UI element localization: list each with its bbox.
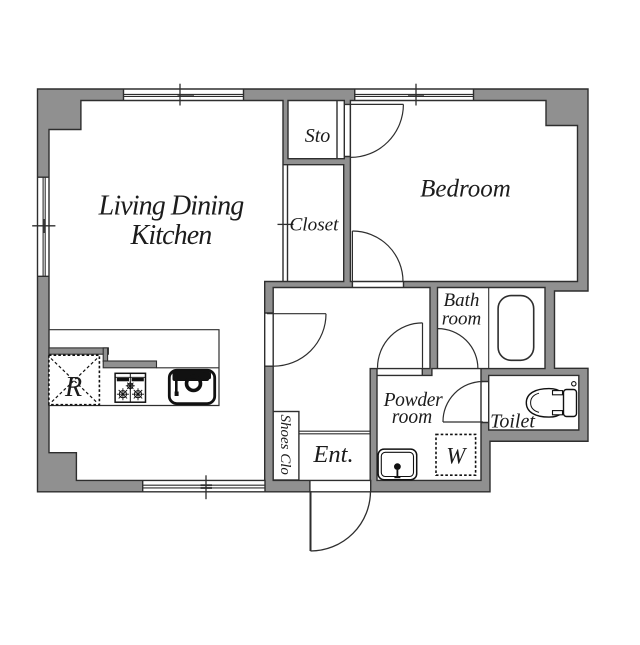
svg-text:room: room: [392, 407, 432, 428]
svg-text:Bedroom: Bedroom: [420, 176, 511, 203]
svg-text:R: R: [64, 372, 82, 403]
svg-text:Living Dining: Living Dining: [98, 191, 245, 222]
svg-text:W: W: [446, 444, 467, 469]
svg-text:Toilet: Toilet: [490, 410, 535, 432]
svg-text:Kitchen: Kitchen: [130, 220, 212, 251]
svg-text:Closet: Closet: [289, 215, 339, 236]
svg-text:Ent.: Ent.: [312, 441, 353, 468]
svg-text:Shoes Clo: Shoes Clo: [277, 415, 293, 476]
svg-text:room: room: [442, 309, 481, 330]
svg-text:Sto: Sto: [305, 125, 331, 147]
